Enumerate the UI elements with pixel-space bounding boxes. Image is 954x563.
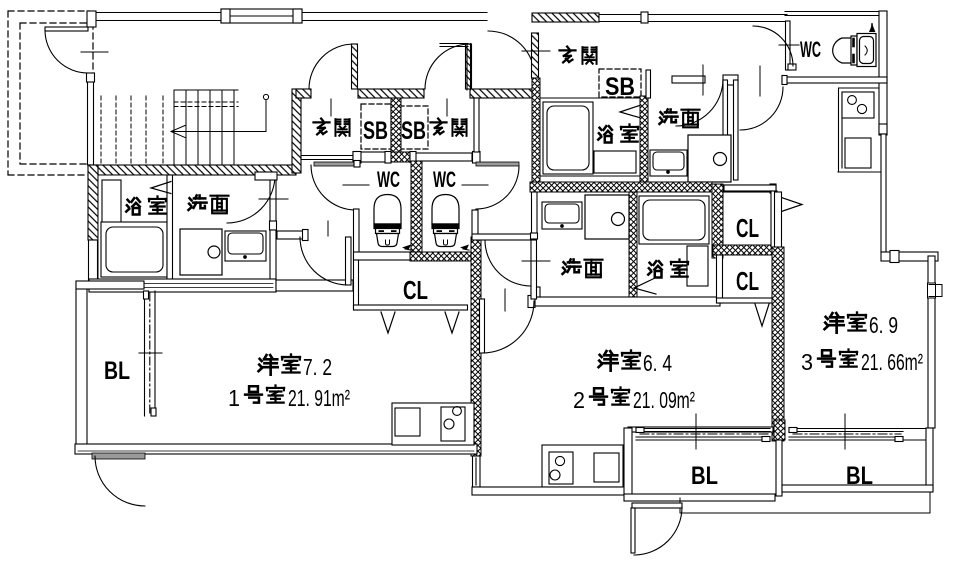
svg-text:SB: SB [363,117,388,145]
svg-text:2: 2 [573,387,585,413]
svg-text:21. 66m²: 21. 66m² [861,349,923,375]
svg-text:1: 1 [228,385,240,411]
svg-text:BL: BL [104,357,130,385]
svg-text:SB: SB [401,117,426,145]
svg-text:CL: CL [736,266,759,296]
svg-text:WC: WC [377,167,400,192]
svg-text:CL: CL [736,213,759,243]
svg-text:BL: BL [846,462,873,490]
svg-text:3: 3 [801,349,813,375]
svg-text:7. 2: 7. 2 [303,354,332,380]
svg-text:BL: BL [691,462,718,490]
svg-text:6. 9: 6. 9 [869,312,898,338]
svg-text:WC: WC [800,37,821,62]
svg-text:21. 91m²: 21. 91m² [288,385,350,411]
svg-text:21. 09m²: 21. 09m² [633,387,695,413]
svg-text:6. 4: 6. 4 [643,350,672,376]
svg-text:WC: WC [433,167,456,192]
svg-text:SB: SB [605,73,635,101]
svg-text:CL: CL [403,275,428,305]
